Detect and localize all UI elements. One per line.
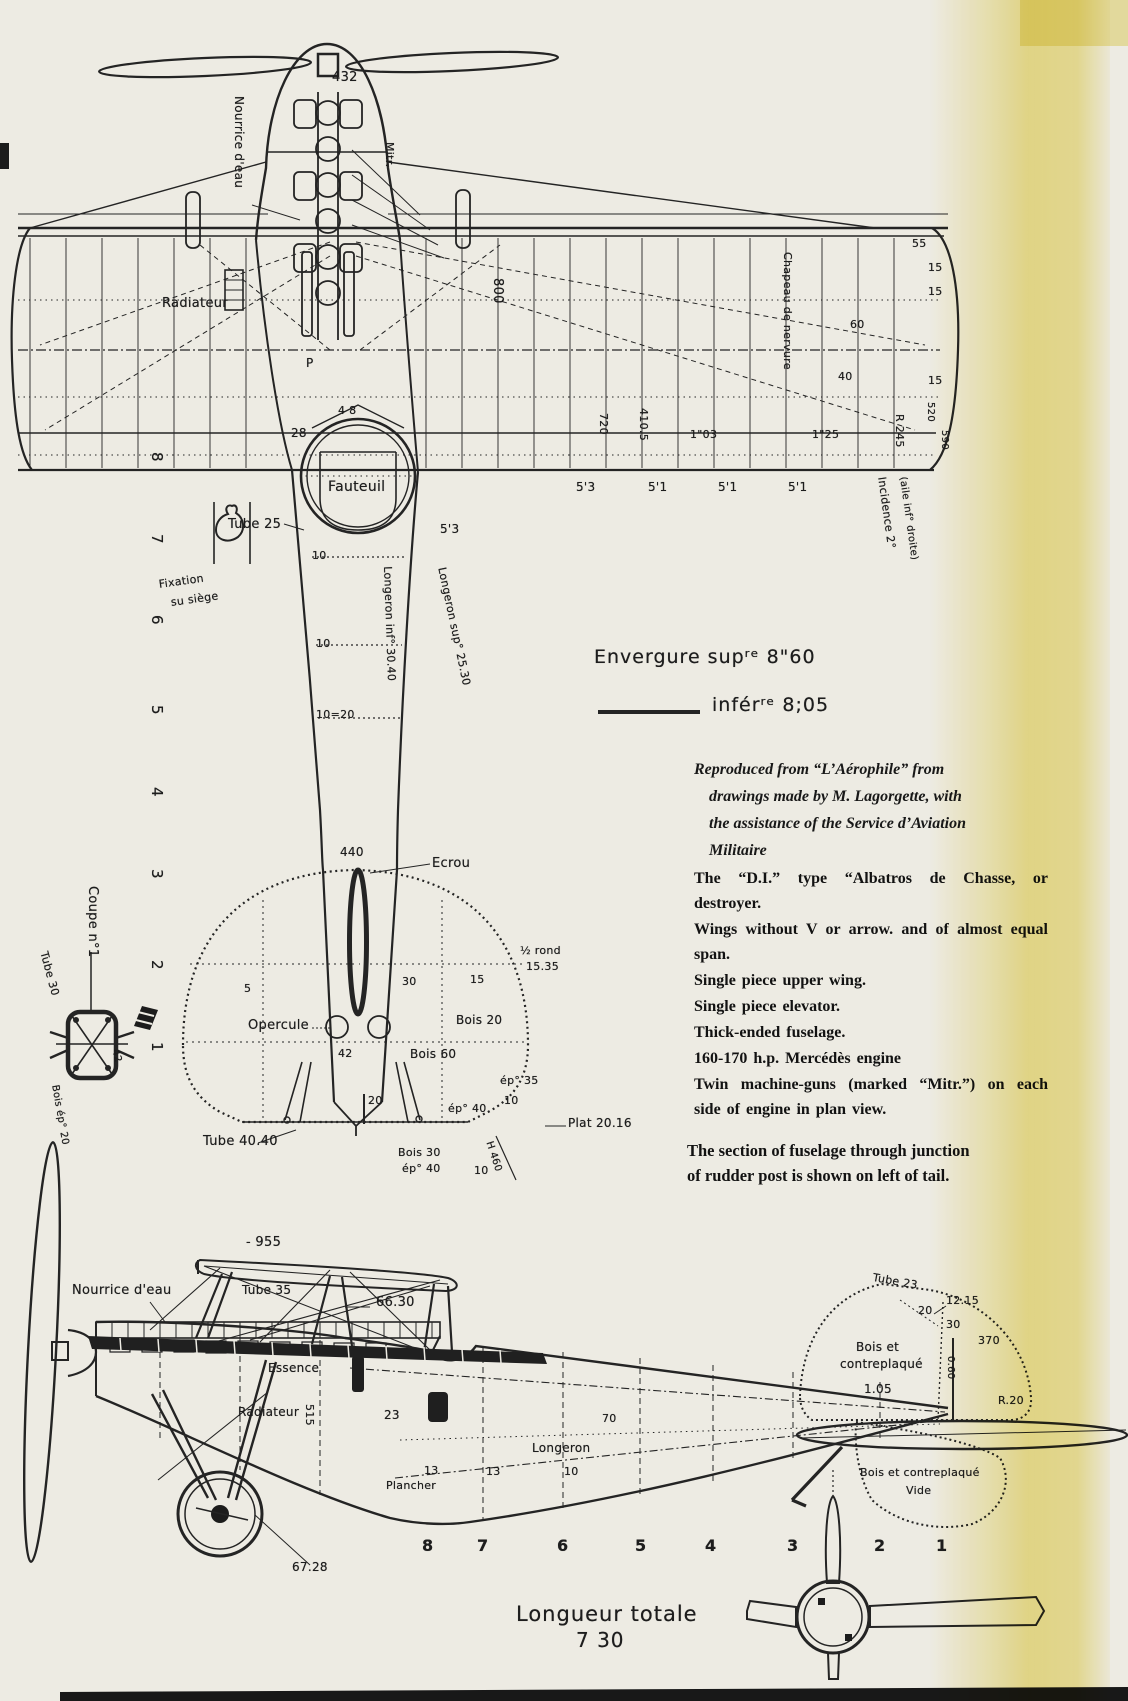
side-station-6: 6: [557, 1536, 568, 1555]
legend-envergure-inf: inférʳᵉ 8;05: [712, 694, 829, 716]
label-demi-rond: ½ rond: [520, 944, 561, 957]
dim-4-8: 4 8: [338, 404, 356, 417]
dim-10-a: 10: [312, 549, 327, 562]
cockpit-plan: [300, 419, 416, 533]
feature-item: Twin machine-guns (marked “Mitr.”) on ea…: [694, 1072, 1048, 1122]
dim-10-20: 10=20: [316, 708, 355, 721]
feature-item: 160-170 h.p. Mercédès engine: [694, 1046, 1048, 1071]
dim-432: 432: [332, 70, 358, 85]
dim-1-05: 1.05: [864, 1382, 892, 1396]
label-tube25: Tube 25: [228, 517, 281, 532]
label-bois-fin-1: Bois et: [856, 1340, 899, 1354]
dim-13-b: 13: [486, 1465, 501, 1478]
station-7: 7: [148, 534, 166, 544]
dim-13-a: 13: [424, 1464, 439, 1477]
label-longueur-totale: Longueur totale: [516, 1602, 698, 1626]
chord-2: 5'1: [648, 480, 667, 494]
dim-40: 40: [838, 370, 853, 383]
chord-4: 5'1: [788, 480, 807, 494]
dim-23: 23: [384, 1408, 400, 1422]
left-wingtip: [12, 228, 32, 470]
nose-outline: [256, 44, 400, 240]
propeller-side: [17, 1142, 96, 1563]
landing-gear: [152, 1360, 310, 1565]
legend-envergure-sup: Envergure supʳᵉ 8"60: [594, 646, 816, 668]
seat-fixation-detail: [214, 502, 304, 564]
dim-10-c: 10: [504, 1094, 519, 1107]
tail-fin-side: [800, 1284, 1031, 1420]
station-4: 4: [148, 787, 166, 797]
credit-line: Reproduced from “L’Aérophile” from: [694, 756, 1050, 783]
dim-10-d: 10: [474, 1164, 489, 1177]
dim-10-b: 10: [316, 637, 331, 650]
dim-20: 20: [368, 1094, 383, 1107]
fuselage-side: [96, 1302, 948, 1524]
dim-42: 42: [338, 1047, 353, 1060]
label-tube-35: Tube 35: [242, 1283, 291, 1297]
engine-plan: [294, 92, 444, 340]
dim-longueur-730: 7 30: [576, 1628, 625, 1652]
tailplane-plan: [183, 864, 566, 1180]
feature-item: Single piece upper wing.: [694, 968, 1048, 993]
dim-800: 800: [490, 278, 505, 304]
label-ecrou: Ecrou: [432, 856, 470, 871]
dim-15-d: 15: [470, 973, 485, 986]
credit-paragraph: Reproduced from “L’Aérophile” from drawi…: [694, 756, 1050, 864]
dim-70: 70: [602, 1412, 617, 1425]
dim-ep-40-a: ép° 40: [448, 1102, 487, 1115]
tail-rear-view: [747, 1468, 1044, 1679]
dim-520: 520: [925, 402, 936, 422]
rear-fuselage-plan: [256, 240, 418, 1136]
station-6: 6: [148, 615, 166, 625]
chord-1: 5'3: [576, 480, 595, 494]
machine-gun-left: [302, 252, 312, 336]
label-vide: Vide: [906, 1484, 931, 1497]
dim-67-28: 67.28: [292, 1560, 328, 1574]
side-station-5: 5: [635, 1536, 646, 1555]
dim-955: - 955: [246, 1235, 281, 1250]
dim-30: 30: [402, 975, 417, 988]
dim-r-20: R.20: [998, 1394, 1024, 1407]
station-8: 8: [148, 452, 166, 462]
dim-1m25: 1"25: [812, 428, 839, 441]
station-3: 3: [148, 869, 166, 879]
label-bois-20: Bois 20: [456, 1013, 502, 1027]
side-station-2: 2: [874, 1536, 885, 1555]
label-longeron-side: Longeron: [532, 1441, 590, 1455]
label-essence: Essence: [268, 1361, 319, 1375]
station-1: 1: [148, 1042, 166, 1052]
feature-list: The “D.I.” type “Albatros de Chasse, or …: [694, 866, 1048, 1123]
lower-wing-side: [88, 1336, 547, 1364]
dim-410-5: 410.5: [637, 408, 650, 441]
dim-p: P: [306, 356, 314, 370]
dim-720: 720: [597, 413, 610, 435]
credit-line: drawings made by M. Lagorgette, with: [709, 783, 1050, 810]
note-line: The section of fuselage through junction: [687, 1138, 1055, 1163]
scanned-drawing-page: 432 Nourrice d'eau Mitr. Radiateur P 4 8…: [0, 0, 1128, 1701]
label-bois-60: Bois 60: [410, 1047, 456, 1061]
dim-12-15: 12.15: [946, 1294, 979, 1307]
label-radiateur-plan: Radiateur: [162, 296, 228, 311]
dim-15-a: 15: [928, 261, 943, 274]
credit-line: the assistance of the Service d’Aviation: [709, 810, 1050, 837]
label-demi-rond-2: 15.35: [526, 960, 559, 973]
label-bois-30: Bois 30: [398, 1146, 441, 1159]
station-5: 5: [148, 705, 166, 715]
label-chapeau-nervure: Chapeau de nervure: [781, 252, 794, 370]
dim-55: 55: [912, 237, 927, 250]
dim-15-c: 15: [928, 374, 943, 387]
elevator-side: [797, 1421, 1127, 1449]
label-bois-fin-2: contreplaqué: [840, 1357, 923, 1371]
label-coupe-n1: Coupe n°1: [85, 886, 100, 957]
feature-item: Wings without V or arrow. and of almost …: [694, 917, 1048, 967]
dim-15-b: 15: [928, 285, 943, 298]
label-radiateur-side: Radiateur: [238, 1405, 299, 1419]
pilot-seat-side: [428, 1392, 448, 1422]
side-station-8: 8: [422, 1536, 433, 1555]
dim-ep-40-b: ép° 40: [402, 1162, 441, 1175]
dim-370: 370: [978, 1334, 1000, 1347]
strut-post-left: [186, 192, 200, 248]
dim-590: 590: [939, 430, 950, 450]
scan-edge-bottom: [60, 1687, 1128, 1701]
side-station-4: 4: [705, 1536, 716, 1555]
label-plat: Plat 20.16: [568, 1116, 632, 1130]
label-opercule: Opercule: [248, 1018, 309, 1033]
fuel-tank-side: [352, 1356, 364, 1392]
note-paragraph: The section of fuselage through junction…: [687, 1138, 1055, 1188]
station-2: 2: [148, 960, 166, 970]
dim-66-30: 66.30: [376, 1295, 415, 1310]
hatch-mark: [134, 1006, 158, 1030]
strut-post-right: [456, 190, 470, 248]
side-station-1: 1: [936, 1536, 947, 1555]
dim-r245: R 245: [893, 414, 906, 448]
label-bois-rudder: Bois et contreplaqué: [860, 1466, 980, 1479]
dim-ep-35: ép° 35: [500, 1074, 539, 1087]
label-mitr: Mitr.: [383, 142, 396, 167]
feature-item: Thick-ended fuselage.: [694, 1020, 1048, 1045]
machine-gun-right: [344, 252, 354, 336]
label-fauteuil: Fauteuil: [328, 479, 385, 495]
label-tube-4040: Tube 40.40: [203, 1134, 278, 1149]
dim-5: 5: [244, 982, 251, 995]
dim-440: 440: [340, 845, 364, 859]
dim-515: 515: [303, 1404, 316, 1426]
propeller-plan: [99, 48, 559, 80]
scan-mark-left: [0, 143, 9, 169]
label-nourrice-side: Nourrice d'eau: [72, 1283, 172, 1298]
chord-3: 5'1: [718, 480, 737, 494]
dim-30-fin: 30: [946, 1318, 961, 1331]
side-station-7: 7: [477, 1536, 488, 1555]
dim-20-fin: 20: [918, 1304, 933, 1317]
feature-item: Single piece elevator.: [694, 994, 1048, 1019]
label-plancher: Plancher: [386, 1479, 436, 1492]
dim-60: 60: [850, 318, 865, 331]
credit-line: Militaire: [709, 837, 1050, 864]
dim-1m03: 1"03: [690, 428, 717, 441]
side-station-3: 3: [787, 1536, 798, 1555]
dim-0-60: 0.60: [945, 1356, 956, 1379]
note-line: of rudder post is shown on left of tail.: [687, 1163, 1055, 1188]
dim-28: 28: [291, 426, 307, 440]
coupe-section-detail: [50, 952, 158, 1078]
chord-root: 5'3: [440, 522, 459, 536]
feature-item: The “D.I.” type “Albatros de Chasse, or …: [694, 866, 1048, 916]
dim-10-side: 10: [564, 1465, 579, 1478]
label-nourrice-plan: Nourrice d'eau: [232, 96, 246, 188]
